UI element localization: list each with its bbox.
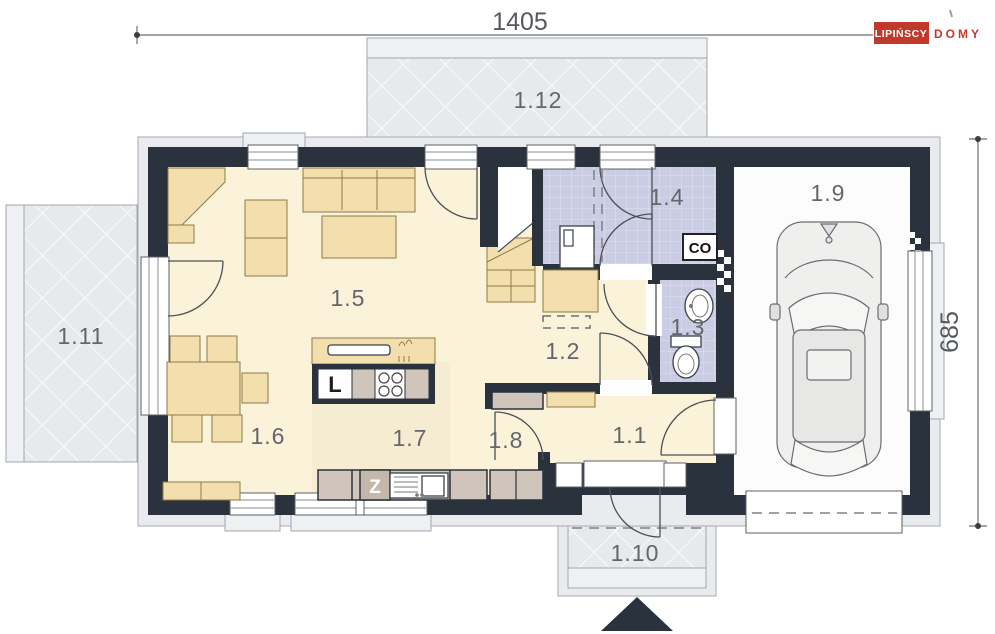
room-label-wc: 1.3 (671, 314, 706, 340)
room-label-garage: 1.9 (811, 180, 846, 206)
entrance-arrow-icon (601, 597, 673, 631)
room-label-hall: 1.1 (613, 422, 648, 448)
floor-plan-page: L Z CO (0, 0, 995, 634)
dimension-width-label: 1405 (492, 8, 548, 36)
kitchen-island: L (312, 338, 435, 404)
kitchen-counter: Z (318, 470, 487, 500)
room-label-terrace-side: 1.11 (57, 323, 104, 349)
room-label-living: 1.5 (331, 285, 366, 311)
room-label-porch: 1.10 (611, 540, 660, 566)
garage-door (746, 491, 902, 533)
room-label-kitchen: 1.7 (393, 425, 428, 451)
logo-secondary: DOMY (934, 27, 982, 41)
room-label-utility: 1.4 (650, 184, 685, 210)
car (770, 222, 888, 476)
logo: LIPIŃSCY DOMY (874, 10, 982, 44)
room-label-vestibule: 1.8 (489, 427, 524, 453)
dimension-height: 685 (936, 136, 987, 529)
floor-plan-drawing: L Z CO (0, 0, 995, 634)
logo-primary: LIPIŃSCY (875, 27, 927, 40)
dimension-height-label: 685 (936, 311, 964, 353)
boiler-label: CO (689, 240, 712, 257)
room-label-dining: 1.6 (251, 423, 286, 449)
room-label-stair-hall: 1.2 (546, 338, 581, 364)
room-label-terrace-back: 1.12 (514, 87, 563, 113)
fridge-label: L (328, 372, 341, 397)
sink-label: Z (369, 477, 381, 498)
